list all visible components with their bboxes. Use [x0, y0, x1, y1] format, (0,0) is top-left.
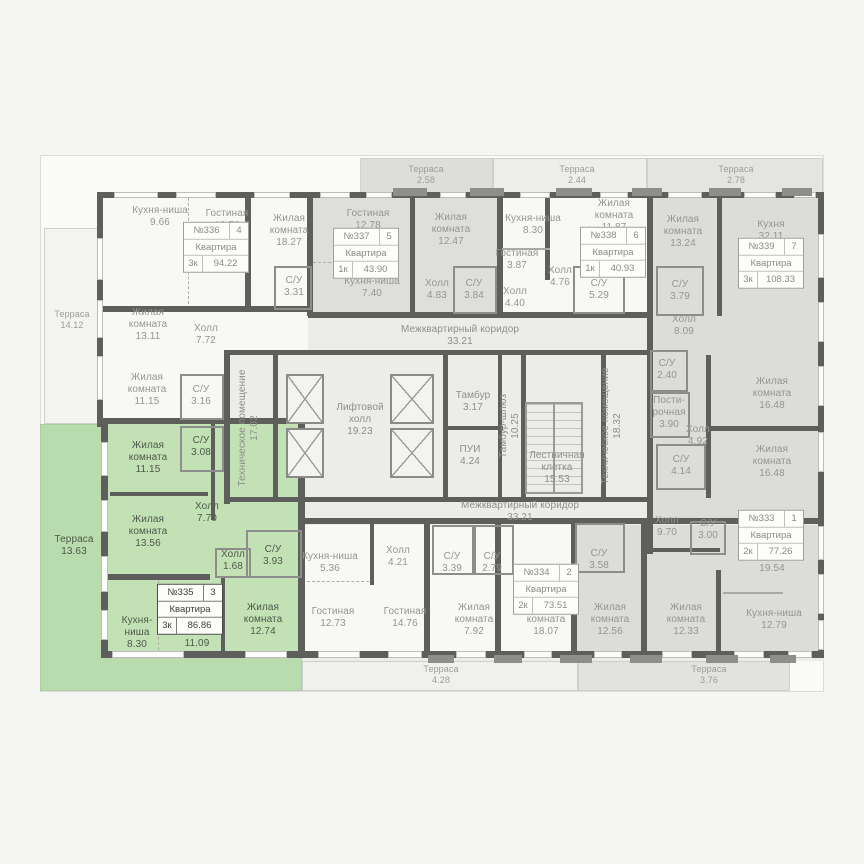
room-area: 12.73	[312, 618, 355, 630]
room-area: 5.29	[589, 290, 609, 302]
apartment-tag-№334[interactable]: №3342Квартира2к73.51	[513, 564, 579, 615]
room-area: 9.70	[655, 527, 679, 539]
room-label: С/У3.16	[191, 384, 211, 408]
room-label: ПУИ4.24	[459, 444, 480, 468]
room-name: Холл	[194, 323, 218, 335]
apartment-type-label: Квартира	[184, 238, 248, 256]
window	[176, 192, 216, 198]
apartment-tag-№339[interactable]: №3397Квартира3к108.33	[738, 238, 804, 289]
apartment-type-label: Квартира	[739, 254, 803, 272]
room-area: 3.79	[670, 291, 690, 303]
room-name: Кухня-ниша	[302, 551, 358, 563]
room-area: 4.24	[459, 456, 480, 468]
room-label: Холл4.83	[425, 278, 449, 302]
room-label: С/У3.93	[263, 544, 283, 568]
wall	[307, 581, 369, 582]
window	[97, 356, 103, 400]
room-area: 3.84	[464, 290, 484, 302]
room-area: 15.53	[529, 474, 585, 486]
room-area: 8.30	[505, 225, 561, 237]
window	[320, 192, 350, 198]
room-area: 4.14	[671, 466, 691, 478]
room-name: С/У	[589, 548, 609, 560]
apartment-position: 6	[627, 228, 645, 244]
room-label: Техническое помещение17.02	[237, 369, 261, 486]
apartment-type-label: Квартира	[739, 526, 803, 544]
room-label: Пости- рочная3.90	[652, 395, 685, 431]
wall	[273, 352, 278, 499]
room-label: Жилая комната12.33	[667, 602, 706, 638]
apartment-rooms-count: 1к	[581, 261, 600, 277]
room-label: Гостиная14.76	[384, 606, 427, 630]
room-area: 3.17	[456, 402, 491, 414]
room-name: Жилая комната	[244, 602, 283, 626]
region-terrace-bottom-2	[578, 661, 790, 691]
window	[524, 651, 552, 658]
apartment-total-area: 77.26	[758, 544, 803, 560]
room-area: 19.54	[751, 563, 794, 575]
room-name: Гостиная	[496, 248, 539, 260]
room-label: Жилая комната7.92	[455, 602, 494, 638]
window	[101, 500, 108, 532]
apartment-rooms-count: 2к	[514, 598, 533, 614]
room-name: Холл	[686, 424, 710, 436]
apartment-total-area: 94.22	[203, 256, 248, 272]
apartment-rooms-count: 1к	[334, 262, 353, 278]
room-label: Межквартирный коридор33.21	[401, 324, 519, 348]
room-name: Жилая комната	[432, 212, 471, 236]
pillar	[560, 655, 592, 663]
pillar	[770, 655, 796, 663]
window	[318, 651, 360, 658]
room-name: Жилая комната	[664, 214, 703, 238]
room-label: С/У4.14	[671, 454, 691, 478]
room-label: Лифтовой холл19.23	[336, 402, 383, 438]
room-label: Гостиная3.87	[496, 248, 539, 272]
room-area: 17.02	[249, 369, 261, 486]
room-name: Жилая комната	[591, 602, 630, 626]
apartment-total-area: 43.90	[353, 262, 398, 278]
window	[97, 238, 103, 280]
wall	[424, 523, 430, 653]
room-name: Тамбур-шлюз	[498, 394, 510, 458]
room-label: Терраса14.12	[54, 309, 89, 331]
room-area: 14.76	[384, 618, 427, 630]
room-label: Жилая комната12.56	[591, 602, 630, 638]
room-label: Жилая комната16.48	[753, 444, 792, 480]
room-area: 3.58	[589, 560, 609, 572]
room-name: Терраса	[691, 664, 726, 675]
apartment-tag-№335[interactable]: №3353Квартира3к86.86	[157, 584, 223, 635]
room-area: 2.78	[718, 175, 753, 186]
wall	[716, 570, 721, 655]
room-label: Гостиная12.73	[312, 606, 355, 630]
room-label: С/У5.29	[589, 278, 609, 302]
room-name: Гостиная	[347, 208, 390, 220]
room-area: 18.27	[270, 237, 309, 249]
wall	[647, 518, 653, 554]
room-name: Кухня-ниша	[746, 608, 802, 620]
room-name: С/У	[464, 278, 484, 290]
window	[818, 526, 824, 560]
room-label: Терраса2.78	[718, 164, 753, 186]
window	[101, 610, 108, 640]
room-label: Терраса4.28	[423, 664, 458, 686]
room-area: 16.48	[753, 468, 792, 480]
apartment-type-label: Квартира	[514, 580, 578, 598]
room-label: Терраса3.76	[691, 664, 726, 686]
apartment-number: №337	[334, 229, 380, 245]
room-name: Кухня- ниша	[122, 615, 153, 639]
floor-plan-page: Кухня-ниша9.66Гостиная13.72Жилая комната…	[0, 0, 864, 864]
room-name: Жилая комната	[129, 514, 168, 538]
room-name: Терраса	[54, 309, 89, 320]
room-name: Холл	[195, 501, 219, 513]
room-area: 33.21	[461, 512, 579, 524]
room-name: Пости- рочная	[652, 395, 685, 419]
room-name: Холл	[503, 286, 527, 298]
apartment-rooms-count: 3к	[158, 618, 177, 634]
room-name: С/У	[442, 551, 462, 563]
window	[668, 192, 702, 198]
room-label: Лестничная клетка15.53	[529, 450, 585, 486]
room-name: Гостиная	[384, 606, 427, 618]
room-area: 7.92	[455, 626, 494, 638]
room-area: 18.07	[527, 626, 566, 638]
room-name: С/У	[589, 278, 609, 290]
window	[734, 651, 764, 658]
apartment-type-label: Квартира	[158, 600, 222, 618]
room-name: С/У	[670, 279, 690, 291]
wall	[110, 492, 208, 496]
wall	[224, 350, 230, 504]
room-area: 7.72	[194, 335, 218, 347]
room-label: Холл8.09	[672, 314, 696, 338]
window	[520, 192, 550, 198]
apartment-rooms-count: 3к	[739, 272, 758, 288]
window	[818, 574, 824, 614]
room-label: Кухня-ниша9.66	[132, 205, 188, 229]
room-label: Жилая комната16.48	[753, 376, 792, 412]
room-label: С/У3.39	[442, 551, 462, 575]
room-area: 12.74	[244, 626, 283, 638]
room-label: Холл1.68	[221, 549, 245, 573]
wall	[723, 592, 783, 594]
apartment-number: №338	[581, 228, 627, 244]
room-name: Межквартирный коридор	[461, 500, 579, 512]
room-area: 3.16	[191, 396, 211, 408]
apartment-position: 2	[560, 565, 578, 581]
room-area: 4.76	[548, 277, 572, 289]
room-name: Терраса	[408, 164, 443, 175]
room-name: Техническое помещение	[600, 367, 612, 484]
room-area: 2.58	[408, 175, 443, 186]
room-label: Терраса2.44	[559, 164, 594, 186]
room-area: 2.44	[559, 175, 594, 186]
wall	[717, 196, 722, 316]
room-label: Холл4.40	[503, 286, 527, 310]
room-area: 7.40	[344, 288, 400, 300]
room-name: Терраса	[54, 534, 93, 546]
apartment-tag-№333[interactable]: №3331Квартира2к77.26	[738, 510, 804, 561]
pillar	[632, 188, 662, 196]
room-label: Жилая комната12.47	[432, 212, 471, 248]
apartment-rooms-count: 3к	[184, 256, 203, 272]
room-name: Холл	[386, 545, 410, 557]
room-name: ПУИ	[459, 444, 480, 456]
room-name: С/У	[657, 358, 677, 370]
room-label: Жилая комната12.74	[244, 602, 283, 638]
apartment-position: 7	[785, 239, 803, 255]
window	[388, 651, 422, 658]
room-name: Гостиная	[206, 208, 249, 220]
apartment-tag-№337[interactable]: №3375Квартира1к43.90	[333, 228, 399, 279]
wall	[706, 426, 820, 431]
window	[818, 432, 824, 472]
apartment-number: №333	[739, 511, 785, 527]
room-label: Холл4.92	[686, 424, 710, 448]
room-area: 4.21	[386, 557, 410, 569]
apartment-type-label: Квартира	[334, 244, 398, 262]
wall	[108, 574, 210, 580]
window	[366, 192, 392, 198]
wall	[224, 350, 652, 355]
room-label: Кухня-ниша5.36	[302, 551, 358, 575]
room-area: 12.47	[432, 236, 471, 248]
room-area: 3.90	[652, 419, 685, 431]
room-area: 13.24	[664, 238, 703, 250]
elevator-icon	[286, 374, 324, 424]
pillar	[556, 188, 592, 196]
room-area: 7.70	[195, 513, 219, 525]
room-name: Техническое помещение	[237, 369, 249, 486]
room-label: Холл7.72	[194, 323, 218, 347]
room-name: Жилая комната	[595, 198, 634, 222]
apartment-total-area: 108.33	[758, 272, 803, 288]
apartment-type-label: Квартира	[581, 243, 645, 261]
room-name: Кухня	[757, 219, 784, 231]
wall	[443, 426, 503, 430]
window	[114, 192, 158, 198]
room-label: Тамбур-шлюз10.25	[498, 394, 522, 458]
room-label: Холл9.70	[655, 515, 679, 539]
pillar	[393, 188, 427, 196]
room-label: С/У3.08	[191, 435, 211, 459]
room-name: Жилая комната	[667, 602, 706, 626]
room-label: Тамбур3.17	[456, 390, 491, 414]
room-area: 8.09	[672, 326, 696, 338]
room-area: 2.79	[482, 563, 502, 575]
window	[818, 620, 824, 650]
pillar	[470, 188, 504, 196]
room-label: Жилая комната11.15	[128, 372, 167, 408]
room-name: Лифтовой холл	[336, 402, 383, 426]
apartment-position: 5	[380, 229, 398, 245]
room-label: Холл4.76	[548, 265, 572, 289]
room-label: Терраса13.63	[54, 534, 93, 558]
room-area: 10.25	[510, 394, 522, 458]
room-name: С/У	[284, 275, 304, 287]
room-area: 12.56	[591, 626, 630, 638]
apartment-position: 4	[230, 223, 248, 239]
room-label: С/У2.40	[657, 358, 677, 382]
room-name: Жилая комната	[753, 376, 792, 400]
room-name: С/У	[671, 454, 691, 466]
room-name: Гостиная	[312, 606, 355, 618]
room-area: 11.15	[129, 464, 168, 476]
pillar	[428, 655, 454, 663]
room-label: С/У3.84	[464, 278, 484, 302]
wall	[370, 523, 374, 585]
room-label: С/У3.79	[670, 279, 690, 303]
window	[245, 651, 287, 658]
room-area: 14.12	[54, 320, 89, 331]
window	[456, 651, 486, 658]
room-name: С/У	[263, 544, 283, 556]
room-area: 3.93	[263, 556, 283, 568]
elevator-icon	[390, 374, 434, 424]
room-area: 13.56	[129, 538, 168, 550]
room-label: С/У2.79	[482, 551, 502, 575]
apartment-total-area: 40.93	[600, 261, 645, 277]
room-area: 33.21	[401, 336, 519, 348]
room-name: Жилая комната	[129, 440, 168, 464]
pillar	[494, 655, 522, 663]
apartment-number: №334	[514, 565, 560, 581]
window	[101, 556, 108, 592]
room-name: Жилая комната	[128, 372, 167, 396]
room-area: 2.40	[657, 370, 677, 382]
room-name: Терраса	[423, 664, 458, 675]
room-label: Жилая комната11.15	[129, 440, 168, 476]
pillar	[709, 188, 741, 196]
room-label: Техническое помещение18.32	[600, 367, 624, 484]
room-name: Кухня-ниша	[132, 205, 188, 217]
room-area: 12.79	[746, 620, 802, 632]
room-area: 1.68	[221, 561, 245, 573]
room-area: 13.11	[129, 331, 168, 343]
room-name: Межквартирный коридор	[401, 324, 519, 336]
window	[97, 300, 103, 338]
room-name: Тамбур	[456, 390, 491, 402]
apartment-total-area: 86.86	[177, 618, 222, 634]
room-label: Кухня-ниша7.40	[344, 276, 400, 300]
window	[254, 192, 290, 198]
room-label: Терраса2.58	[408, 164, 443, 186]
room-label: С/У3.31	[284, 275, 304, 299]
room-area: 3.08	[191, 447, 211, 459]
room-area: 4.40	[503, 298, 527, 310]
room-label: Жилая комната13.56	[129, 514, 168, 550]
room-name: Терраса	[559, 164, 594, 175]
apartment-tag-№336[interactable]: №3364Квартира3к94.22	[183, 222, 249, 273]
room-area: 3.87	[496, 260, 539, 272]
room-name: Холл	[221, 549, 245, 561]
window	[818, 302, 824, 342]
room-name: С/У	[482, 551, 502, 563]
wall	[224, 497, 652, 502]
apartment-position: 1	[785, 511, 803, 527]
window	[440, 192, 466, 198]
room-name: Холл	[425, 278, 449, 290]
window	[662, 651, 692, 658]
room-label: С/У3.00	[698, 518, 718, 542]
room-name: Жилая комната	[753, 444, 792, 468]
room-label: Жилая комната18.27	[270, 213, 309, 249]
wall	[410, 196, 415, 314]
room-area: 11.15	[128, 396, 167, 408]
room-area: 3.00	[698, 530, 718, 542]
room-area: 16.48	[753, 400, 792, 412]
room-area: 11.09	[176, 638, 219, 650]
room-name: Жилая комната	[270, 213, 309, 237]
room-name: Лестничная клетка	[529, 450, 585, 474]
room-name: Холл	[548, 265, 572, 277]
apartment-tag-№338[interactable]: №3386Квартира1к40.93	[580, 227, 646, 278]
room-label: Кухня- ниша8.30	[122, 615, 153, 651]
elevator-icon	[286, 428, 324, 478]
apartment-rooms-count: 2к	[739, 544, 758, 560]
room-area: 4.83	[425, 290, 449, 302]
room-area: 3.31	[284, 287, 304, 299]
room-area: 19.23	[336, 426, 383, 438]
pillar	[706, 655, 738, 663]
room-label: С/У3.58	[589, 548, 609, 572]
room-label: Холл7.70	[195, 501, 219, 525]
window	[744, 192, 776, 198]
room-label: Межквартирный коридор33.21	[461, 500, 579, 524]
room-area: 12.33	[667, 626, 706, 638]
apartment-position: 3	[204, 585, 222, 601]
room-name: Холл	[672, 314, 696, 326]
room-name: Жилая комната	[455, 602, 494, 626]
room-area: 4.92	[686, 436, 710, 448]
apartment-number: №339	[739, 239, 785, 255]
room-area: 9.66	[132, 217, 188, 229]
room-area: 3.39	[442, 563, 462, 575]
room-name: С/У	[191, 384, 211, 396]
apartment-number: №336	[184, 223, 230, 239]
room-area: 18.32	[612, 367, 624, 484]
room-label: Жилая комната13.24	[664, 214, 703, 250]
floor-plan-canvas: Кухня-ниша9.66Гостиная13.72Жилая комната…	[0, 0, 864, 864]
room-label: Кухня-ниша12.79	[746, 608, 802, 632]
room-name: Кухня-ниша	[505, 213, 561, 225]
window	[818, 234, 824, 278]
apartment-number: №335	[158, 585, 204, 601]
room-label: Жилая комната13.11	[129, 307, 168, 343]
room-name: Терраса	[718, 164, 753, 175]
pillar	[630, 655, 662, 663]
apartment-total-area: 73.51	[533, 598, 578, 614]
window	[101, 442, 108, 476]
room-name: Холл	[655, 515, 679, 527]
window	[818, 366, 824, 406]
room-label: Кухня-ниша8.30	[505, 213, 561, 237]
room-area: 5.36	[302, 563, 358, 575]
window	[594, 651, 622, 658]
window	[112, 651, 184, 658]
room-name: С/У	[698, 518, 718, 530]
room-area: 3.76	[691, 675, 726, 686]
room-area: 13.63	[54, 546, 93, 558]
room-name: Жилая комната	[129, 307, 168, 331]
room-name: С/У	[191, 435, 211, 447]
pillar	[782, 188, 812, 196]
room-label: Холл4.21	[386, 545, 410, 569]
elevator-icon	[390, 428, 434, 478]
room-area: 4.28	[423, 675, 458, 686]
